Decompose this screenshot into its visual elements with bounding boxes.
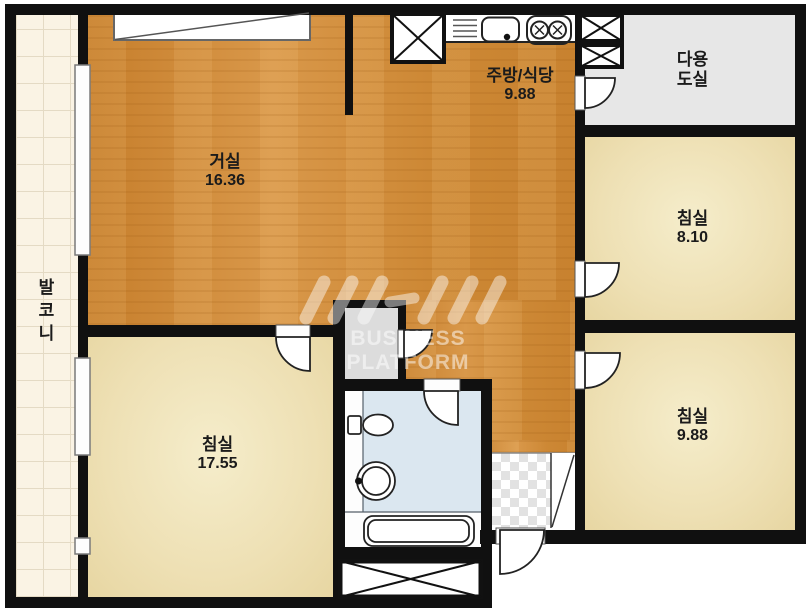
room-name-line2: 도실 [655, 70, 730, 90]
wall-storage-left [333, 300, 345, 330]
room-name-line1: 다용 [655, 50, 730, 70]
bathroom-wet-area [363, 391, 481, 512]
room-name: 주방/식당 [455, 66, 585, 86]
room-name: 침실 [160, 435, 275, 455]
wall-outer-left [5, 4, 16, 608]
wall-outer-right [795, 4, 806, 544]
balcony-label: 발코니 [36, 278, 53, 347]
wall-balcony [78, 15, 88, 597]
wall-bedrooms-divider [575, 320, 801, 333]
room-name: 침실 [640, 407, 745, 427]
wall-bathroom-top [333, 379, 492, 391]
wall-outer-top [5, 4, 806, 15]
bedroom-bottom-right-label: 침실 9.88 [640, 407, 745, 445]
wall-kitchen-stub [345, 15, 353, 115]
watermark-subtitle: BUSINESS PLATFORM [296, 327, 520, 375]
room-area: 17.55 [160, 455, 275, 473]
built-in-closet [113, 12, 311, 41]
entrance-floor [492, 453, 575, 530]
wall-utility-bottom [575, 125, 801, 137]
wall-entry-bottom-right [545, 530, 806, 544]
kitchen-dining-label: 주방/식당 9.88 [455, 66, 585, 104]
wall-bathroom-right [481, 379, 492, 597]
living-room-label: 거실 16.36 [170, 152, 280, 190]
room-area: 16.36 [170, 172, 280, 190]
utility-room-label: 다용 도실 [655, 50, 730, 89]
bedroom-top-right-label: 침실 8.10 [640, 209, 745, 247]
room-name: 거실 [170, 152, 280, 172]
bedroom-left-label: 침실 17.55 [160, 435, 275, 473]
kitchen-counter [444, 15, 575, 43]
room-area: 8.10 [640, 229, 745, 247]
wall-outer-bottom [5, 597, 492, 608]
wall-bathroom-bottom [333, 547, 492, 561]
hall-closet-xbox-icon [340, 561, 481, 597]
room-area: 9.88 [640, 427, 745, 445]
living-room-floor [88, 15, 575, 325]
room-area: 9.88 [455, 86, 585, 104]
floorplan-canvas: 발코니 거실 16.36 주방/식당 9.88 다용 도실 침실 8.10 침실… [0, 0, 808, 613]
room-name: 침실 [640, 209, 745, 229]
